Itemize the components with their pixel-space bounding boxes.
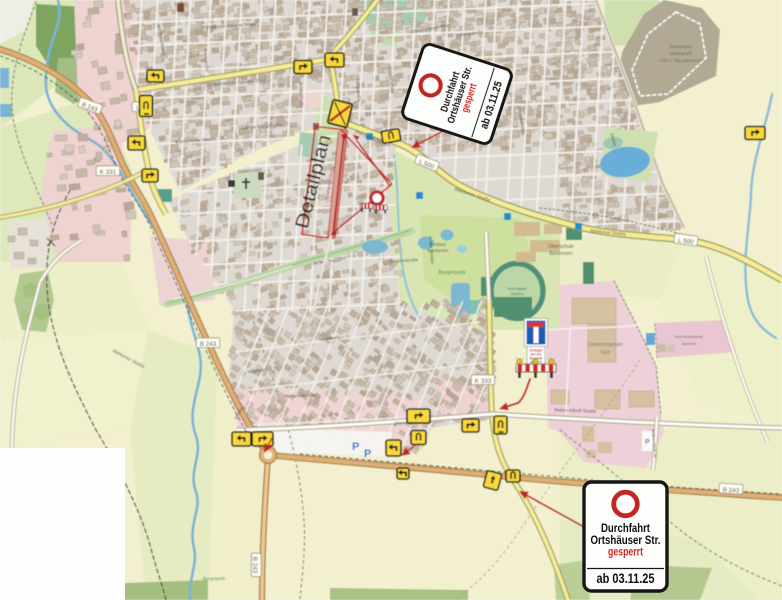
svg-text:K 331: K 331 <box>100 169 117 176</box>
svg-text:Oberschule: Oberschule <box>548 244 574 250</box>
svg-text:Ortshäuser Str.: Ortshäuser Str. <box>591 535 661 547</box>
svg-text:ab 03.11.25: ab 03.11.25 <box>597 571 655 586</box>
svg-text:Stadion: Stadion <box>511 292 524 296</box>
svg-text:Bockenem: Bockenem <box>549 251 573 257</box>
svg-text:Briefverteilzentr.: Briefverteilzentr. <box>675 334 704 339</box>
svg-text:B 243: B 243 <box>722 487 739 495</box>
svg-text:B 243: B 243 <box>251 557 258 574</box>
svg-text:Süd: Süd <box>600 350 609 356</box>
svg-text:Wohnpark: Wohnpark <box>670 51 692 57</box>
svg-text:Burgerpark: Burgerpark <box>438 270 465 276</box>
svg-text:Gewerbegebiet: Gewerbegebiet <box>587 342 623 348</box>
svg-text:Burgerpark: Burgerpark <box>203 576 226 581</box>
svg-text:Ost 2. Bauabschnitt: Ost 2. Bauabschnitt <box>660 58 703 64</box>
svg-text:K 333: K 333 <box>475 378 492 385</box>
svg-text:Kurt-Bades: Kurt-Bades <box>508 287 527 291</box>
svg-text:B 243: B 243 <box>200 341 217 348</box>
svg-text:P: P <box>364 448 371 460</box>
svg-text:P: P <box>645 439 650 446</box>
svg-text:gesperrt: gesperrt <box>608 547 643 559</box>
svg-text:Durchfahrt: Durchfahrt <box>601 523 650 535</box>
svg-text:Baugebiet: Baugebiet <box>670 44 692 50</box>
svg-text:Alzheim: Alzheim <box>682 341 697 346</box>
svg-text:P: P <box>352 441 359 453</box>
